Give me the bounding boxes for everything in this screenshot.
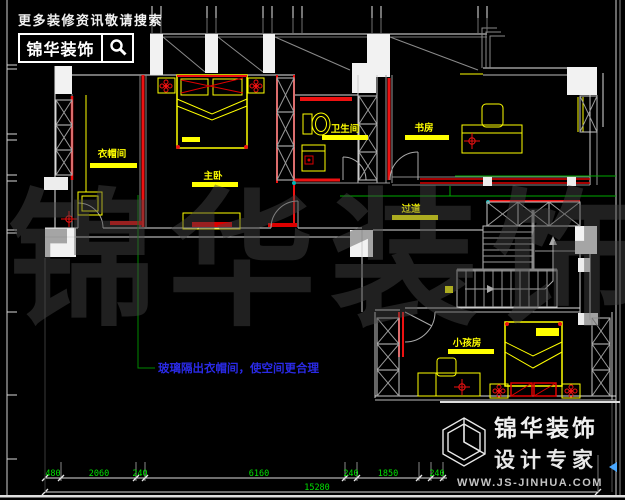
room-label-cloakroom: 衣帽间 — [90, 148, 137, 168]
bathroom-washbasin — [302, 145, 325, 171]
kids-bed — [505, 322, 562, 396]
dim-value: 2060 — [89, 469, 109, 479]
interior-walls — [45, 75, 590, 312]
master-tv-cabinet — [183, 213, 240, 229]
room-label-bathroom: 卫生间 — [322, 123, 368, 140]
room-label-master-bedroom: 主卧 — [192, 170, 238, 187]
svg-text:衣帽间: 衣帽间 — [98, 148, 127, 160]
title-block-website: WWW.JS-JINHUA.COM — [440, 477, 620, 489]
room-labels: 衣帽间 主卧 卫生间 书房 过道 小孩房 — [90, 122, 494, 354]
header: 更多装修资讯敬请搜索 锦华装饰 — [18, 10, 163, 63]
bathroom-toilet — [303, 113, 330, 135]
promo-text: 更多装修资讯敬请搜索 — [18, 10, 163, 29]
dim-value: 240 — [343, 469, 358, 479]
marker-dot — [292, 181, 296, 185]
doors — [78, 152, 435, 342]
cad-floorplan-canvas: 衣帽间 主卧 卫生间 书房 过道 小孩房 — [0, 0, 625, 500]
dim-total: 15280 — [304, 483, 330, 493]
annotation-text: 玻璃隔出衣帽间，使空间更合理 — [158, 361, 319, 375]
svg-text:过道: 过道 — [401, 203, 421, 215]
dim-value: 1850 — [378, 469, 398, 479]
study-desk — [462, 104, 522, 153]
room-label-kids-room: 小孩房 — [448, 337, 494, 354]
room-label-corridor: 过道 — [392, 203, 438, 220]
company-logo: 锦华装饰 — [18, 33, 134, 63]
svg-text:书房: 书房 — [414, 122, 433, 134]
company-logo-text: 锦华装饰 — [20, 35, 101, 61]
room-label-study: 书房 — [405, 122, 449, 140]
title-block-company: 锦华装饰 — [494, 409, 598, 443]
svg-text:卫生间: 卫生间 — [331, 123, 360, 135]
dim-value: 480 — [45, 469, 60, 479]
search-icon — [101, 35, 132, 61]
dim-value: 6160 — [249, 469, 269, 479]
svg-text:小孩房: 小孩房 — [452, 337, 482, 349]
master-bed — [176, 75, 248, 149]
cube-logo-icon — [440, 416, 488, 468]
title-block-tagline: 设计专家 — [494, 444, 598, 474]
dim-value: 240 — [132, 469, 147, 479]
svg-text:主卧: 主卧 — [203, 170, 223, 182]
title-block: 锦华装饰 设计专家 WWW.JS-JINHUA.COM — [440, 401, 620, 498]
